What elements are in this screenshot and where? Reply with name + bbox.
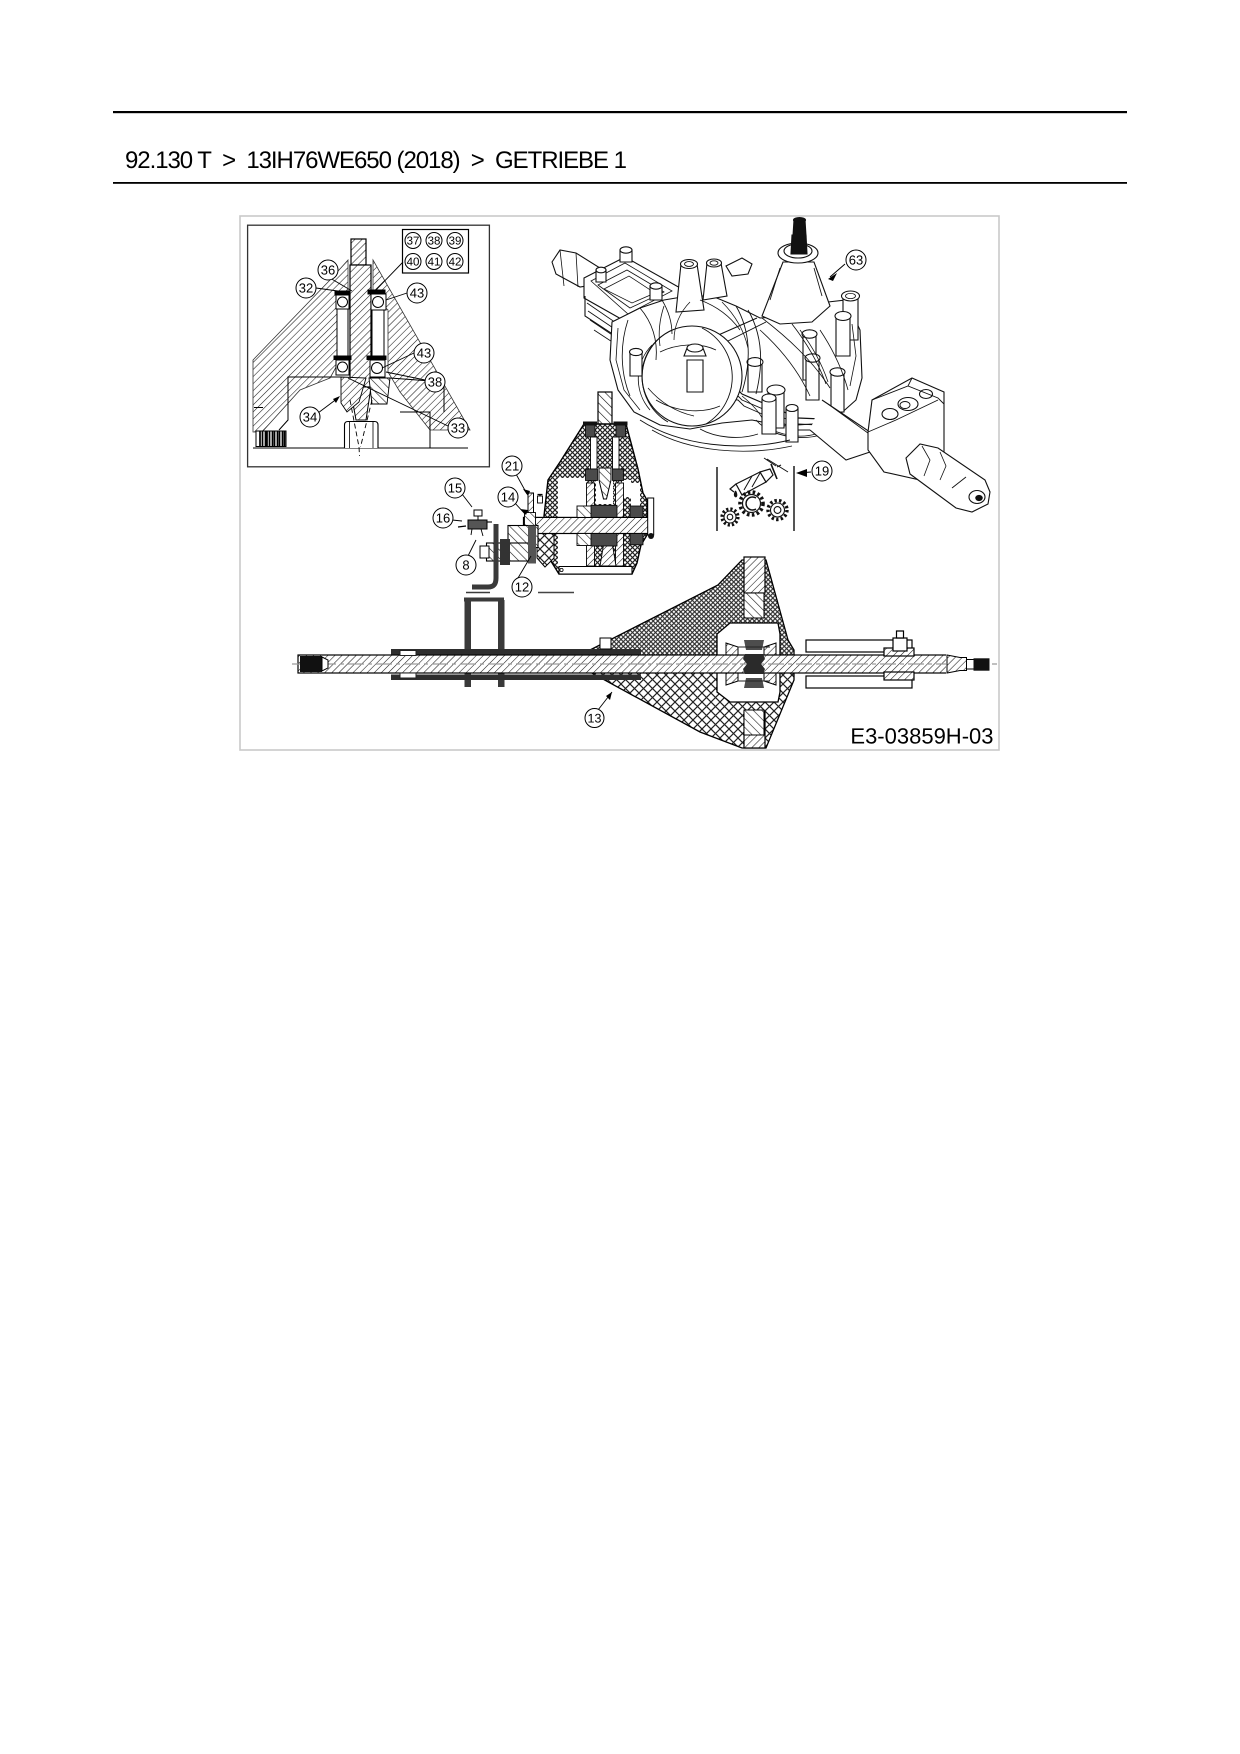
svg-text:39: 39 <box>449 236 462 248</box>
svg-text:40: 40 <box>407 257 420 269</box>
svg-text:43: 43 <box>417 346 431 361</box>
svg-text:E3-03859H-03: E3-03859H-03 <box>850 724 993 749</box>
svg-text:16: 16 <box>436 511 450 526</box>
svg-text:36: 36 <box>321 263 335 278</box>
svg-text:21: 21 <box>505 459 519 474</box>
svg-text:13: 13 <box>588 711 602 725</box>
svg-text:37: 37 <box>407 236 420 248</box>
svg-text:32: 32 <box>299 281 313 296</box>
svg-text:42: 42 <box>449 257 462 269</box>
svg-text:12: 12 <box>515 580 529 595</box>
svg-text:38: 38 <box>428 375 442 390</box>
svg-text:63: 63 <box>849 253 863 268</box>
svg-text:19: 19 <box>815 464 829 479</box>
svg-text:33: 33 <box>451 421 465 436</box>
svg-text:14: 14 <box>501 490 515 505</box>
svg-text:15: 15 <box>448 481 462 496</box>
svg-text:41: 41 <box>428 257 441 269</box>
svg-text:8: 8 <box>462 558 469 573</box>
svg-text:38: 38 <box>428 236 441 248</box>
svg-text:92.130 T > 13IH76WE650 (2018: 92.130 T > 13IH76WE650 (2018) > GETRIEBE… <box>125 147 627 174</box>
svg-text:43: 43 <box>410 286 424 301</box>
svg-text:34: 34 <box>303 410 317 425</box>
